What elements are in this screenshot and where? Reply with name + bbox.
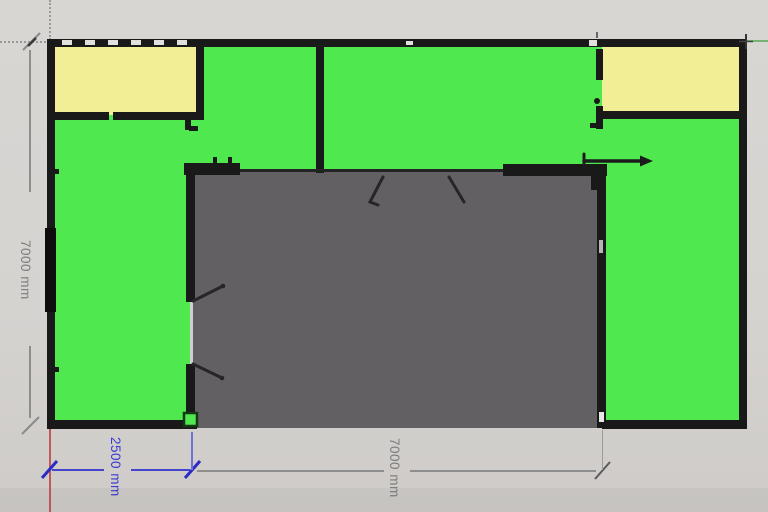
wall-opening-notch: [599, 412, 604, 422]
wall-bottom-left[interactable]: [47, 420, 197, 429]
dim-tick-slash: [22, 417, 39, 434]
room-yellow-top-right[interactable]: [602, 46, 743, 114]
floor-plan-canvas[interactable]: 7000 mm 2500 mm 7000 mm: [0, 0, 768, 512]
wall-yellow1-right[interactable]: [196, 42, 204, 117]
wall-tick: [213, 157, 217, 164]
wall-right[interactable]: [739, 39, 747, 429]
dim-line-left-upper: [29, 50, 31, 192]
dim-line-blue-b: [131, 469, 190, 471]
wall-yellow1-bottom-a[interactable]: [47, 112, 109, 120]
wall-bottom-right[interactable]: [602, 420, 747, 429]
wall-yellow2-bottom[interactable]: [598, 111, 747, 119]
door-stub: [591, 175, 598, 190]
axis-guide-dotted-vertical: [49, 0, 51, 40]
wall-court-left-upper[interactable]: [186, 166, 195, 302]
dim-line-blue-a: [52, 469, 104, 471]
wall-court-top-heavy-left[interactable]: [184, 163, 240, 175]
wall-opening-notch: [406, 41, 413, 45]
dim-line-bottom-a: [197, 470, 384, 472]
dim-line-left-lower: [29, 346, 31, 418]
wall-court-right[interactable]: [597, 166, 606, 428]
dim-line-bottom-b: [410, 470, 596, 472]
dim-label-left[interactable]: 7000 mm: [18, 194, 33, 346]
window-left-wall[interactable]: [45, 228, 56, 312]
bottom-shading: [0, 488, 768, 512]
door-stub-foot: [590, 123, 598, 128]
room-yellow-top-left[interactable]: [54, 45, 198, 115]
gray-court-area[interactable]: [192, 170, 602, 428]
window-dash: [154, 40, 164, 45]
wall-top-band-divider[interactable]: [316, 42, 324, 173]
window-dash: [108, 40, 118, 45]
axis-green-line: [746, 40, 768, 42]
window-dash: [85, 40, 95, 45]
wall-tick: [54, 367, 59, 372]
wall-tick: [54, 169, 59, 174]
door-stub-foot: [189, 126, 198, 131]
window-dash: [131, 40, 141, 45]
window-dash: [62, 40, 72, 45]
dim-extension-line-blue: [191, 432, 193, 470]
wall-tick: [228, 157, 232, 164]
door-hinge-dot: [594, 98, 600, 104]
wall-top[interactable]: [47, 39, 747, 47]
wall-opening-gap: [599, 240, 603, 253]
door-opening-threshold: [190, 302, 193, 364]
wall-opening-notch: [589, 40, 597, 46]
axis-guide-dotted-horizontal: [0, 41, 46, 43]
wall-yellow2-left-stub: [596, 49, 603, 80]
wall-court-left-lower[interactable]: [186, 364, 195, 428]
window-dash: [177, 40, 187, 45]
dim-extension-line-gray: [602, 430, 603, 470]
